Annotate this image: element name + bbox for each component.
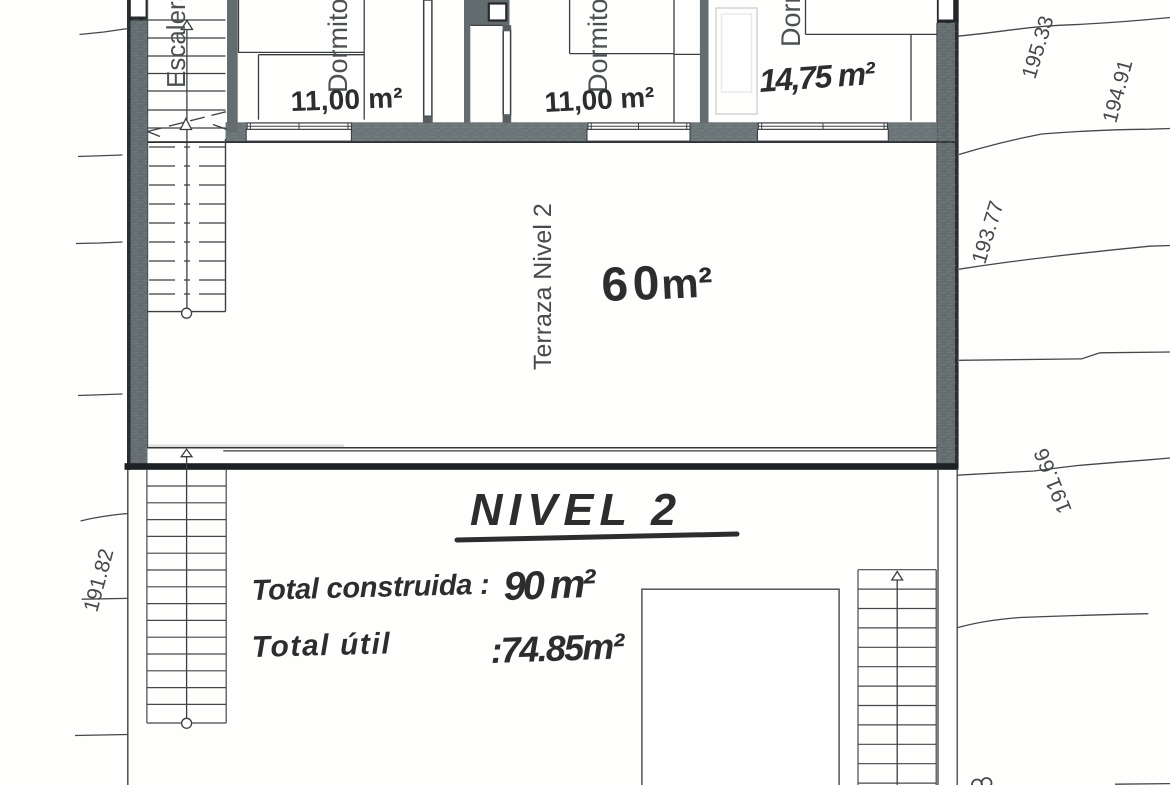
svg-text:191.66: 191.66 bbox=[1029, 444, 1076, 517]
svg-text:193.77: 193.77 bbox=[968, 198, 1009, 266]
svg-text:Total útil: Total útil bbox=[251, 627, 390, 664]
svg-text:194.91: 194.91 bbox=[1099, 57, 1138, 125]
svg-text:11,00 m²: 11,00 m² bbox=[290, 82, 403, 117]
svg-text:m²: m² bbox=[660, 258, 714, 308]
svg-text:Dormitorio: Dormitorio bbox=[776, 0, 806, 47]
svg-text:Dormitorio: Dormitorio bbox=[583, 0, 613, 93]
svg-text:Terraza Nivel 2: Terraza Nivel 2 bbox=[529, 203, 557, 370]
svg-text:60: 60 bbox=[601, 257, 661, 312]
svg-text:Total construida :: Total construida : bbox=[251, 569, 490, 607]
svg-text:90 m²: 90 m² bbox=[503, 562, 598, 609]
svg-text:Escalera: Escalera bbox=[161, 0, 191, 88]
svg-text:Dormitorio: Dormitorio bbox=[323, 0, 353, 93]
svg-text:195.33: 195.33 bbox=[1018, 13, 1059, 81]
svg-text::74.85m²: :74.85m² bbox=[490, 625, 626, 671]
svg-text:NIVEL 2: NIVEL 2 bbox=[470, 484, 683, 535]
svg-text:11,00 m²: 11,00 m² bbox=[544, 81, 655, 118]
svg-text:14,75 m²: 14,75 m² bbox=[758, 55, 878, 99]
svg-text:191.82: 191.82 bbox=[80, 546, 119, 614]
